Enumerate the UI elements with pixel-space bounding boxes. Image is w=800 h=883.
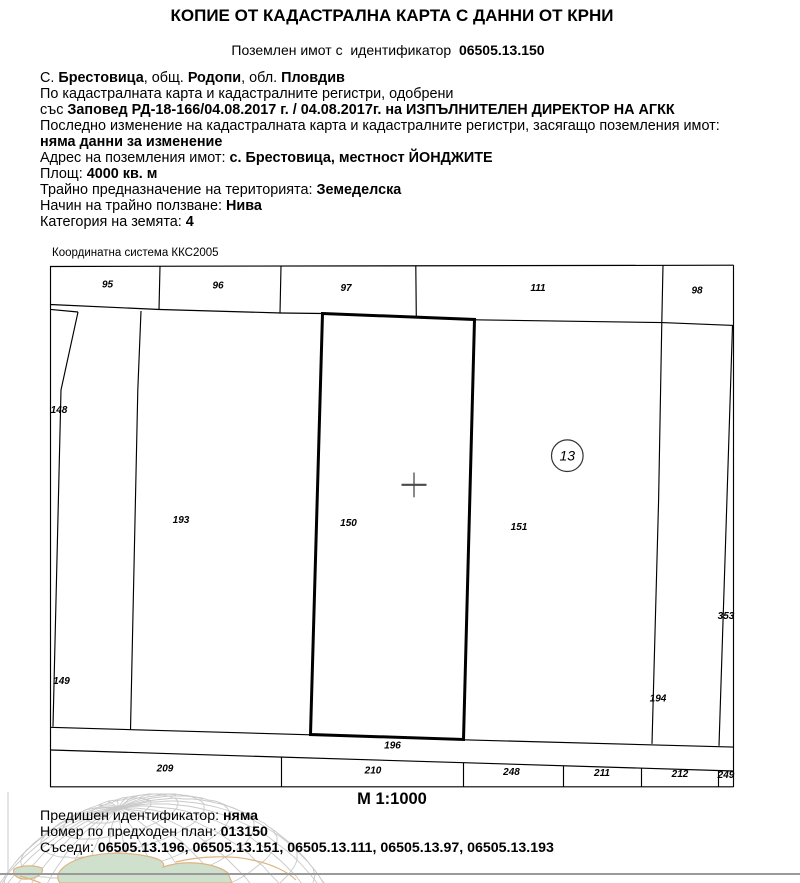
svg-text:98: 98 [691, 286, 703, 297]
svg-text:194: 194 [650, 694, 667, 705]
svg-text:95: 95 [102, 280, 114, 291]
svg-text:209: 209 [156, 764, 174, 775]
svg-text:151: 151 [511, 522, 528, 533]
svg-text:149: 149 [53, 676, 70, 687]
svg-text:196: 196 [384, 741, 401, 752]
svg-text:193: 193 [173, 515, 190, 526]
svg-text:97: 97 [340, 283, 352, 294]
svg-text:249: 249 [717, 770, 735, 781]
svg-text:211: 211 [593, 768, 610, 779]
svg-text:212: 212 [671, 769, 689, 780]
svg-text:210: 210 [364, 766, 382, 777]
svg-text:353: 353 [718, 611, 735, 622]
svg-text:248: 248 [502, 767, 520, 778]
svg-text:13: 13 [560, 448, 576, 464]
svg-text:96: 96 [212, 281, 224, 292]
svg-text:148: 148 [51, 405, 68, 416]
svg-text:150: 150 [340, 518, 357, 529]
svg-text:111: 111 [530, 283, 546, 294]
